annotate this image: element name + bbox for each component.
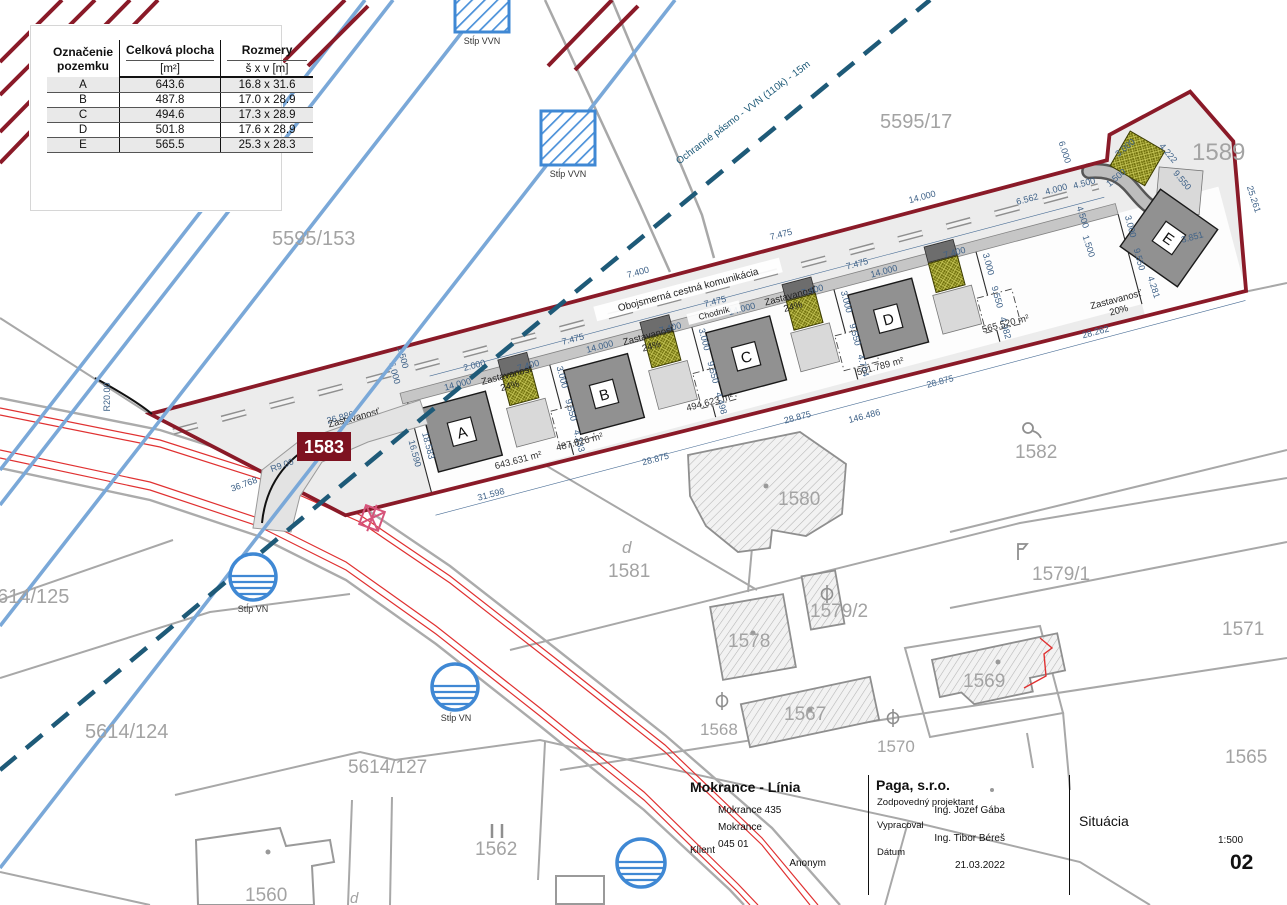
title-block: Mokrance - Línia Mokrance 435 Mokrance 0… [680,775,1287,905]
drawing-title: Situácia [1079,813,1129,829]
vvn-pole-icon [455,0,509,32]
parcel-label-1565: 1565 [1225,747,1267,768]
parcel-label-1570: 1570 [877,737,915,756]
parcel-label-5595-153: 5595/153 [272,228,355,250]
site-plan-canvas: A B C [0,0,1287,905]
responsible-value: Ing. Jozef Gába [880,805,1005,816]
title-block-divider [868,775,869,895]
parcel-label-1579-1: 1579/1 [1032,564,1090,585]
parcel-label-1560: 1560 [245,885,287,905]
legend-col2-header: Celková plocha [120,40,221,62]
vn-pole-icon [432,664,478,710]
dim-label: 28.875 [925,373,954,390]
dim-label: 25.261 [1245,184,1263,213]
project-address-2: Mokrance [718,822,762,833]
dim-label: R20.00 [102,382,112,411]
client-label: Klient [690,845,715,856]
parcel-label-5595-17: 5595/17 [880,111,952,133]
date-label: Dátum [877,847,905,858]
parcel-label-5614-127: 5614/127 [348,757,427,778]
tree-symbol-icon [1023,423,1033,433]
dim-label: 31.598 [476,486,505,503]
project-title: Mokrance - Línia [690,779,800,795]
land-use-letter: d [622,538,632,557]
parcel-label-1562: 1562 [475,839,517,860]
vn-pole-label: Stĺp VN [238,603,269,614]
dim-label: 6.000 [1057,140,1073,165]
sheet-number: 02 [1230,851,1253,875]
dim-label: 28.875 [783,409,812,426]
author-value: Ing. Tibor Béreš [880,833,1005,844]
legend-col3-unit: š x v [m] [221,62,314,77]
site-parcel-badge: 1583 [297,432,351,461]
land-use-letter: d [350,890,359,905]
parcel-label-1581: 1581 [608,561,650,582]
parcel-label-1589: 1589 [1192,139,1245,166]
parcel-label-1580: 1580 [778,489,820,510]
legend-panel: Označeniepozemku Celková plocha Rozmery … [30,25,282,211]
date-value: 21.03.2022 [880,860,1005,871]
project-address-3: 045 01 [718,839,749,850]
legend-row: D501.817.6 x 28.9 [47,123,313,138]
parcel-label-1578: 1578 [728,631,770,652]
vvn-pole-label: Stĺp VVN [550,168,587,179]
dim-label: 36.768 [229,475,258,494]
vn-pole-label: Stĺp VN [441,712,472,723]
legend-row: B487.817.0 x 28.9 [47,93,313,108]
client-value: Anonym [740,858,826,869]
dim-label: 14.000 [908,188,937,205]
dim-label: 28.875 [641,451,670,468]
vn-pole-icon [617,839,665,887]
parcel-label-1569: 1569 [963,671,1005,692]
parcel-label-5614-124: 5614/124 [85,721,168,743]
vn-pole-icon [230,554,276,600]
flag-symbol-icon [1018,544,1027,560]
parcel-label-1568: 1568 [700,720,738,739]
parcel-label-1567: 1567 [784,704,826,725]
parcel-label-1571: 1571 [1222,619,1264,640]
parcel-label-1579-2: 1579/2 [810,601,868,622]
gate-symbol-icon [492,824,502,838]
parcel-label-1582: 1582 [1015,442,1057,463]
legend-row: C494.617.3 x 28.9 [47,108,313,123]
legend-col1-header: Označeniepozemku [47,40,120,77]
vvn-pole-icon [541,111,595,165]
svg-text:1583: 1583 [304,437,344,457]
drawing-scale: 1:500 [1218,835,1243,846]
author-label: Vypracoval [877,820,924,831]
company-name: Paga, s.r.o. [876,777,950,793]
legend-col2-unit: [m²] [120,62,221,77]
building-outline-small [556,876,604,904]
building-1580 [688,432,846,552]
title-block-divider [1069,775,1070,895]
parcel-label-5614-125: 5614/125 [0,586,69,608]
legend-table: Označeniepozemku Celková plocha Rozmery … [47,40,313,153]
dim-label: 7.400 [626,264,650,279]
vvn-pole-label: Stĺp VVN [464,35,501,46]
legend-row: A643.616.8 x 31.6 [47,77,313,93]
dim-label: 146.486 [847,407,881,425]
dim-label: 7.475 [769,227,793,242]
project-address-1: Mokrance 435 [718,805,781,816]
legend-col3-header: Rozmery [221,40,314,62]
legend-row: E565.525.3 x 28.3 [47,138,313,153]
